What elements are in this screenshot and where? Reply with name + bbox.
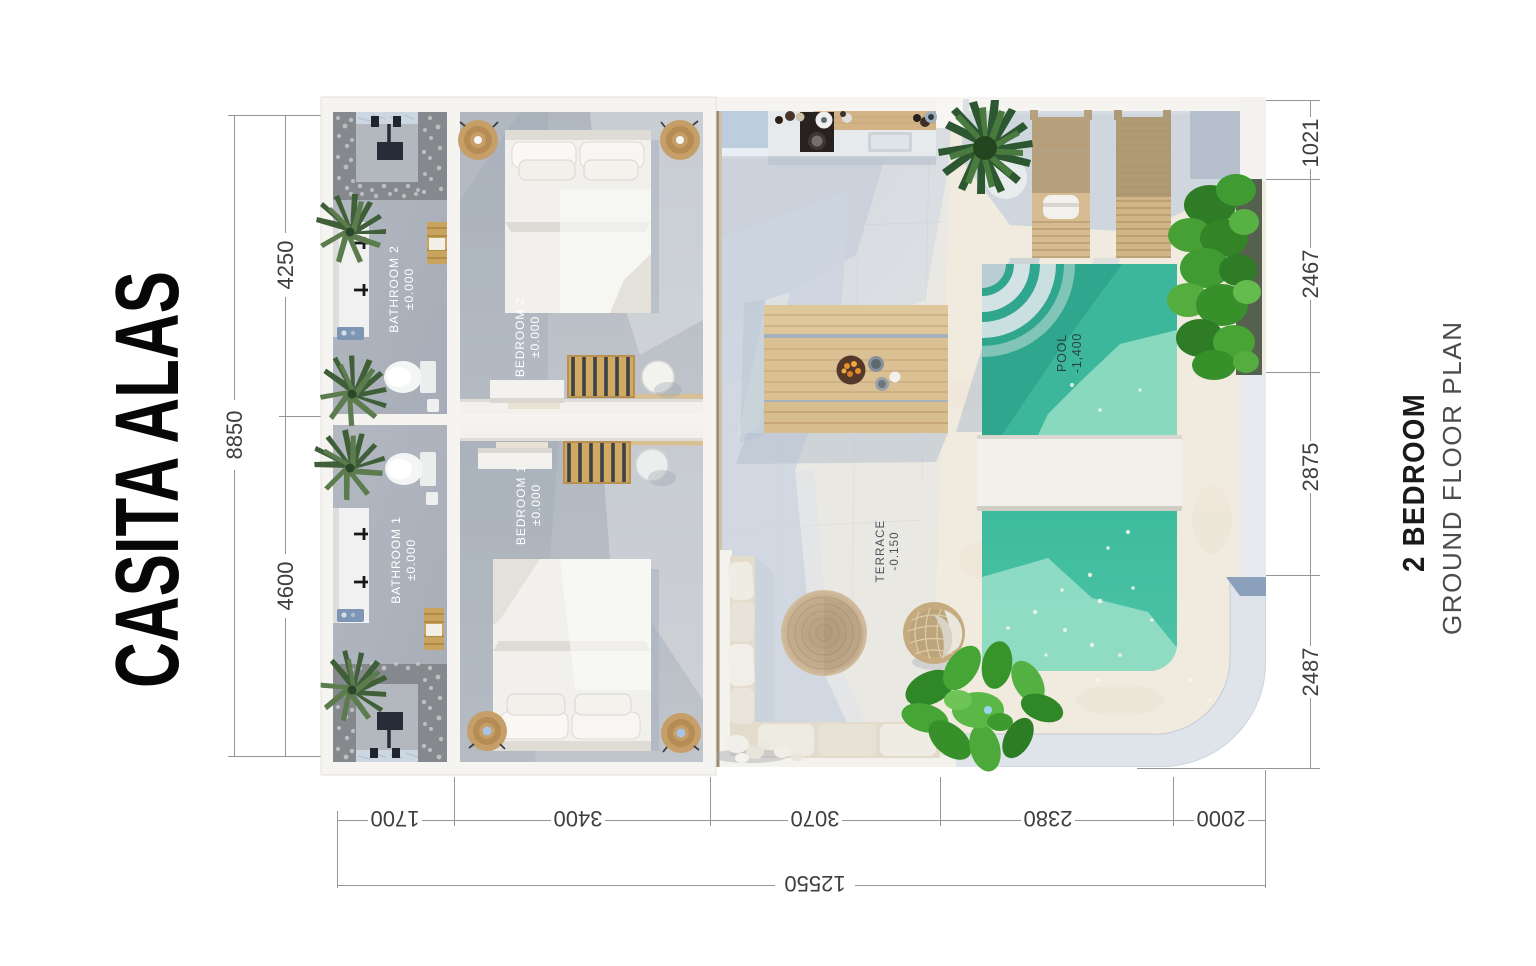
svg-text:2000: 2000 [1197, 806, 1246, 831]
svg-text:8850: 8850 [222, 411, 247, 460]
svg-text:1021: 1021 [1298, 119, 1323, 168]
svg-text:2 BEDROOM: 2 BEDROOM [1396, 393, 1431, 572]
svg-text:2487: 2487 [1298, 648, 1323, 697]
svg-text:POOL-1,400: POOL-1,400 [1055, 333, 1084, 373]
svg-text:2380: 2380 [1024, 806, 1073, 831]
svg-text:12550: 12550 [784, 871, 845, 896]
svg-text:3400: 3400 [554, 806, 603, 831]
svg-text:4600: 4600 [273, 562, 298, 611]
svg-text:CASITA ALAS: CASITA ALAS [98, 271, 198, 688]
svg-text:4250: 4250 [273, 241, 298, 290]
svg-text:GROUND FLOOR PLAN: GROUND FLOOR PLAN [1437, 322, 1467, 635]
svg-text:1700: 1700 [371, 806, 420, 831]
svg-text:2467: 2467 [1298, 250, 1323, 299]
svg-text:3070: 3070 [791, 806, 840, 831]
svg-text:2875: 2875 [1298, 443, 1323, 492]
